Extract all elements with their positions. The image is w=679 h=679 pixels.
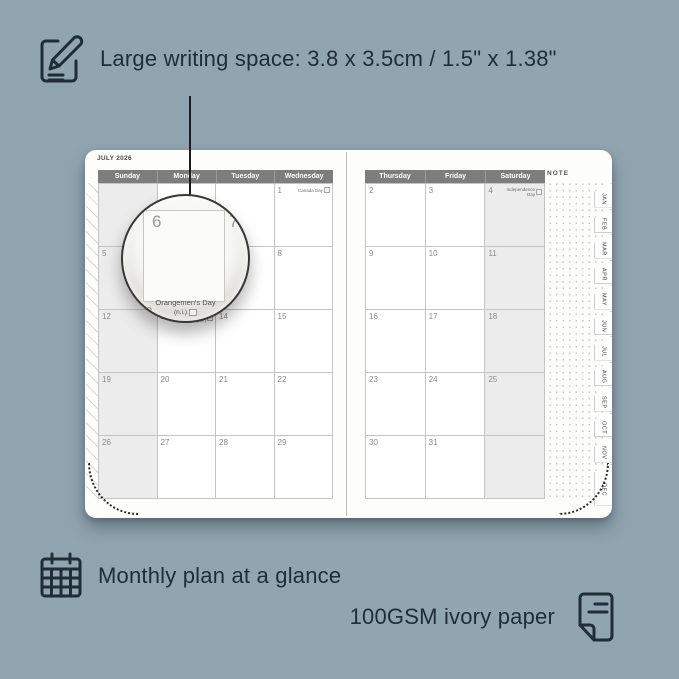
calendar-day-cell: 14 [216, 310, 275, 373]
month-tab-label: JAN [601, 193, 607, 205]
monthly-plan-text: Monthly plan at a glance [98, 563, 341, 589]
writing-space-text: Large writing space: 3.8 x 3.5cm / 1.5" … [100, 46, 557, 72]
header-thursday: Thursday [365, 170, 425, 183]
page-spine [346, 152, 347, 516]
feature-callout-monthly-plan: Monthly plan at a glance [38, 552, 341, 600]
calendar-day-cell: 22 [275, 373, 334, 436]
month-tab-aug[interactable]: AUG [594, 362, 612, 387]
calendar-day-cell: 4Independence Day [485, 184, 545, 247]
header-friday: Friday [425, 170, 485, 183]
month-tab-apr[interactable]: APR [594, 260, 612, 285]
paper-text: 100GSM ivory paper [350, 604, 555, 630]
calendar-day-cell: 23 [366, 373, 426, 436]
holiday-label: Independence Day [498, 187, 542, 197]
calendar-day-cell: 18 [485, 310, 545, 373]
day-number: 12 [102, 312, 111, 321]
corner-stitch-right [559, 463, 609, 515]
month-tab-may[interactable]: MAY [594, 285, 612, 310]
weekday-header-left: Sunday Monday Tuesday Wednesday [98, 170, 333, 183]
header-sunday: Sunday [98, 170, 157, 183]
month-tab-nov[interactable]: NOV [594, 438, 612, 463]
day-number: 10 [429, 249, 438, 258]
binding-hatch-decoration [86, 183, 98, 498]
month-tab-feb[interactable]: FEB [594, 209, 612, 234]
day-number: 21 [219, 375, 228, 384]
weekday-header-right: Thursday Friday Saturday [365, 170, 545, 183]
calendar-day-cell [485, 436, 545, 499]
day-number: 31 [429, 438, 438, 447]
day-number: 27 [161, 438, 170, 447]
day-number: 2 [369, 186, 373, 195]
corner-stitch-left [88, 463, 138, 515]
day-number: 3 [429, 186, 433, 195]
day-number: 17 [429, 312, 438, 321]
day-number: 16 [369, 312, 378, 321]
calendar-day-cell: 25 [485, 373, 545, 436]
feature-callout-paper: 100GSM ivory paper [350, 592, 619, 642]
day-number: 25 [488, 375, 497, 384]
month-tab-label: NOV [601, 446, 607, 459]
month-tab-jan[interactable]: JAN [594, 183, 612, 208]
day-number: 26 [102, 438, 111, 447]
calendar-day-cell: 9 [366, 247, 426, 310]
header-tuesday: Tuesday [216, 170, 275, 183]
calendar-day-cell: 16 [366, 310, 426, 373]
day-number: 30 [369, 438, 378, 447]
calendar-day-cell: 12 [99, 310, 158, 373]
header-monday: Monday [157, 170, 216, 183]
day-number: 5 [102, 249, 106, 258]
month-tab-sep[interactable]: SEP [594, 387, 612, 412]
month-tab-label: AUG [601, 370, 607, 383]
day-number: 11 [488, 249, 496, 258]
calendar-day-cell: 28 [216, 436, 275, 499]
magnified-holiday-label: Orangemen's Day [123, 298, 248, 307]
calendar-day-cell: 31 [426, 436, 486, 499]
month-title: JULY 2026 [97, 155, 132, 162]
day-number: 29 [278, 438, 287, 447]
magnifier-circle: 6 7 13 Orangemen's Day (n.i.) [121, 194, 250, 323]
calendar-day-cell: 2 [366, 184, 426, 247]
holiday-label: Canada Day [298, 187, 330, 193]
day-number: 20 [161, 375, 170, 384]
calendar-day-cell: 8 [275, 247, 334, 310]
calendar-day-cell: 10 [426, 247, 486, 310]
day-number: 15 [278, 312, 287, 321]
month-tab-jul[interactable]: JUL [594, 336, 612, 361]
calendar-day-cell: 1Canada Day [275, 184, 334, 247]
month-tab-mar[interactable]: MAR [594, 234, 612, 259]
day-number: 23 [369, 375, 378, 384]
month-tab-label: JUN [601, 320, 607, 332]
day-number: 4 [488, 186, 492, 195]
calendar-day-cell: 30 [366, 436, 426, 499]
header-wednesday: Wednesday [274, 170, 333, 183]
month-tab-jun[interactable]: JUN [594, 311, 612, 336]
calendar-day-cell: 15 [275, 310, 334, 373]
calendar-day-cell: 29 [275, 436, 334, 499]
month-tab-label: SEP [601, 396, 607, 409]
day-number: 8 [278, 249, 282, 258]
calendar-day-cell: 20 [158, 373, 217, 436]
feature-callout-writing-space: Large writing space: 3.8 x 3.5cm / 1.5" … [36, 32, 557, 86]
month-tab-label: MAR [601, 242, 607, 256]
magnified-date-7: 7 [229, 212, 238, 232]
calendar-day-cell: 24 [426, 373, 486, 436]
month-tab-label: FEB [601, 218, 607, 230]
month-tab-label: OCT [601, 421, 607, 434]
calendar-day-cell: 17 [426, 310, 486, 373]
day-number: 9 [369, 249, 373, 258]
calendar-day-cell: 11 [485, 247, 545, 310]
month-tab-strip: JANFEBMARAPRMAYJUNJULAUGSEPOCTNOVDEC [594, 183, 612, 506]
month-tab-label: APR [601, 268, 607, 281]
day-number: 24 [429, 375, 438, 384]
magnifier-pointer-line [189, 96, 191, 197]
day-number: 28 [219, 438, 228, 447]
calendar-day-cell: 19 [99, 373, 158, 436]
calendar-day-cell: 21 [216, 373, 275, 436]
paper-icon [573, 592, 619, 642]
header-saturday: Saturday [485, 170, 545, 183]
day-number: 18 [488, 312, 497, 321]
pencil-note-icon [36, 32, 86, 86]
day-number: 22 [278, 375, 287, 384]
calendar-day-cell: 27 [158, 436, 217, 499]
calendar-grid-right: 234Independence Day910111617182324253031 [365, 183, 545, 499]
note-label: NOTE [547, 170, 609, 177]
calendar-day-cell: 3 [426, 184, 486, 247]
calendar-grid-icon [38, 552, 84, 600]
day-number: 19 [102, 375, 111, 384]
month-tab-label: MAY [601, 293, 607, 306]
month-tab-oct[interactable]: OCT [594, 413, 612, 438]
month-tab-label: JUL [601, 346, 607, 357]
day-number: 1 [278, 186, 282, 195]
magnified-date-6: 6 [152, 212, 161, 232]
magnified-holiday-note: (n.i.) [123, 309, 248, 316]
